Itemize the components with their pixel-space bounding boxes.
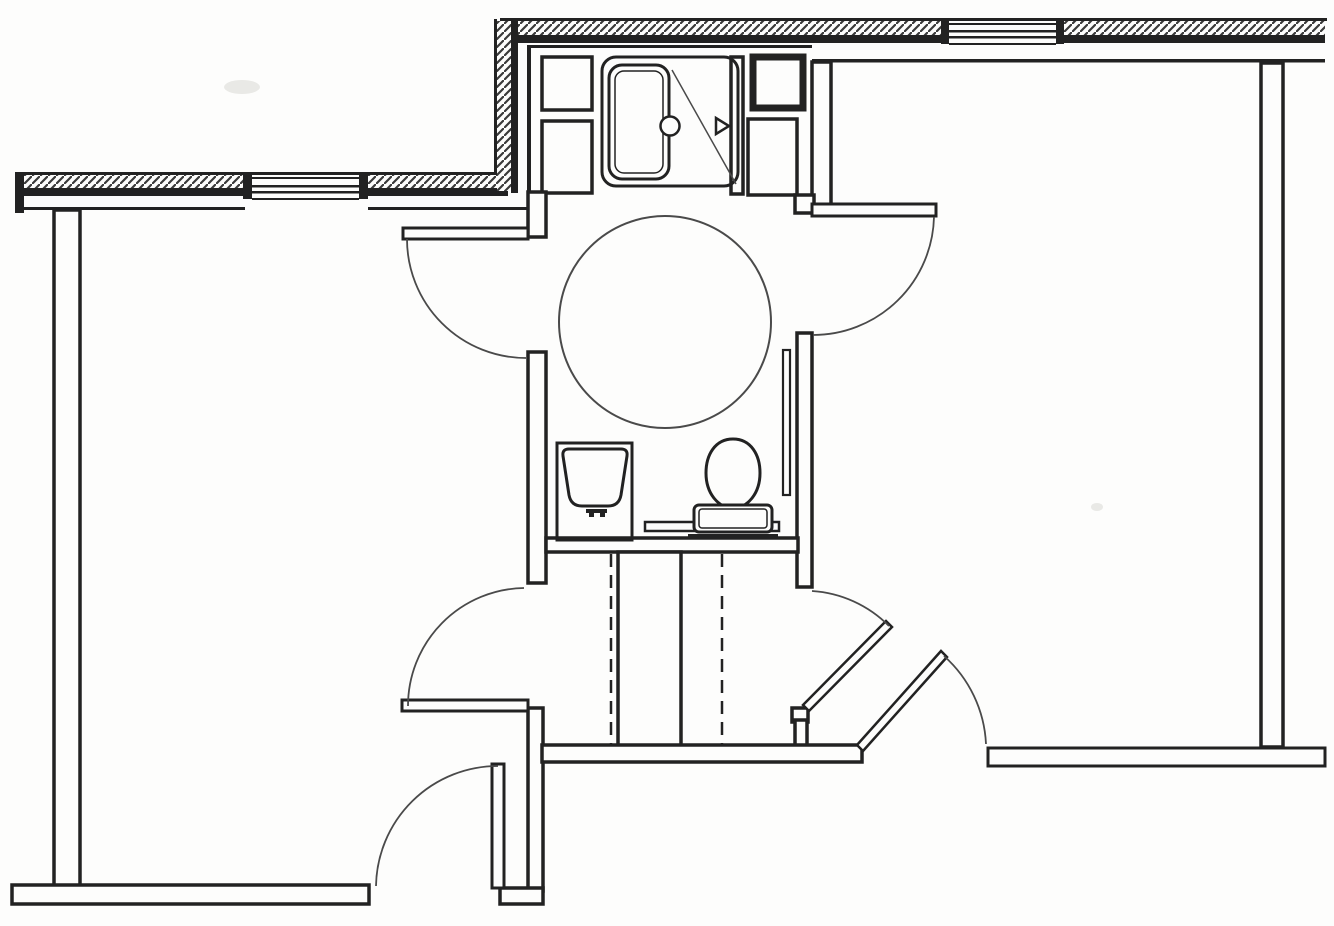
sink-faucet-handle-right [600,513,605,517]
north-window-jamb-east [1056,20,1064,44]
shower-head-symbol [716,118,729,134]
east-room-ceiling-face-line [812,59,1325,63]
west-room-south-wall [12,885,369,904]
west-window-line-3 [252,191,359,194]
north-window-jamb-west [941,20,949,44]
toilet-bowl [706,439,760,508]
door-swing-west-room-entry [376,766,498,886]
north-wall-outer-edge [500,18,1327,21]
west-wall-hatch-a [17,175,245,188]
north-wall-hatch-east [1063,21,1325,36]
bath-east-wall-stub [795,720,807,747]
door-swing-west-room-north [407,239,526,358]
hall-south-wall-west [542,745,862,762]
west-window-line-1 [252,177,359,179]
hall-chase-wall [618,552,681,746]
door-leaf-hall-east-diagonal [803,621,892,711]
floor-plan-canvas [0,0,1334,926]
west-wall-hatch-b [368,175,513,188]
scan-smudge-1 [224,80,260,94]
wall-jog-outer-edge [494,19,497,174]
turning-circle [559,216,771,428]
door-swing-hall-east [812,591,889,626]
east-room-wall-upper [812,62,831,213]
door-leaf-west-room-entry [492,764,504,888]
chase-box-west [542,121,592,193]
west-wall-band-a [17,188,245,196]
bath-west-wall-upper-jamb [528,192,546,237]
north-wall-hatch-west [504,21,943,36]
west-wall-outer-edge [16,172,500,175]
door-leaf-east-room-entry-diagonal [857,651,947,751]
north-wall-inner-band-west [504,35,943,43]
west-room-ceiling-face-line-b [368,207,530,210]
hall-southwest-corner-wall [500,888,543,904]
west-window-jamb-right [359,173,368,199]
north-wall-inner-band-east [1063,35,1325,43]
sink-faucet [586,509,607,513]
bath-west-wall-lower [528,708,543,891]
south-wall-east [988,748,1325,766]
grab-bar-vertical [783,350,790,495]
floor-plan-page [0,0,1334,926]
wall-jog-hatch [497,21,512,191]
sink-bowl [563,449,627,506]
chase-box-east [748,119,797,195]
door-leaf-east-room-north [812,204,936,216]
wall-jog-inner-band [511,21,518,193]
scan-smudge-2 [1091,503,1103,511]
north-window-line-2 [949,30,1056,33]
duct-box-east-bold [753,57,803,108]
door-swing-east-room-entry [944,656,986,744]
north-window-line-4 [949,43,1056,45]
sink-faucet-handle-left [589,513,594,517]
west-window-jamb-left [243,173,252,199]
west-wall-band-b [368,188,508,196]
west-window-line-2 [252,185,359,188]
bath-west-wall-mid [528,352,546,583]
door-swing-east-room-north [813,217,934,335]
north-window-line-3 [949,36,1056,39]
door-leaf-west-room-north [403,228,528,239]
west-window-line-4 [252,198,359,200]
door-swing-hall-west [408,588,524,706]
shower-pan [609,65,669,179]
toilet-base-line [688,534,778,537]
plan-layer [12,18,1327,904]
west-room-west-wall [54,210,80,889]
door-leaf-hall-west [402,700,528,711]
east-room-east-wall [1261,63,1283,747]
shower-room-ceiling-face-line [527,45,812,48]
shower-drain [661,117,680,136]
west-wall-end-cap [15,172,24,213]
north-window-line-1 [949,23,1056,25]
closet-box-west [542,57,592,110]
shower-room-west-face-line [527,45,531,193]
